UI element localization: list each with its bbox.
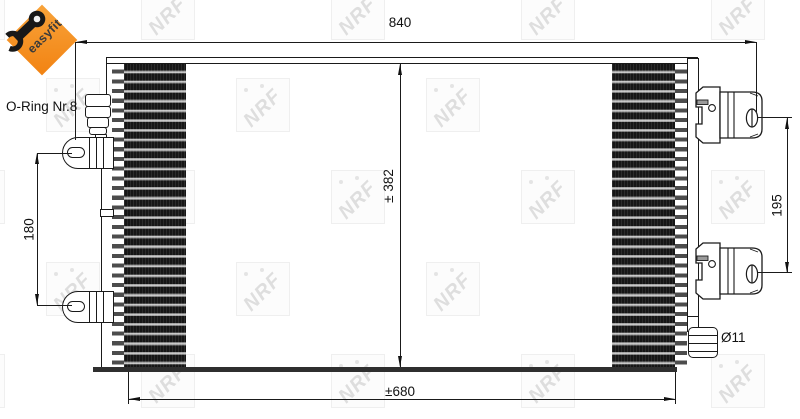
dim-680-arrow-left <box>129 397 140 401</box>
right-port-block-top <box>692 84 766 146</box>
dim-180-ext-top <box>37 153 72 154</box>
dim-195-arrow-bottom <box>785 262 789 273</box>
dim-840-arrow-right <box>745 40 756 44</box>
right-port-block-bottom <box>692 240 766 302</box>
dim-382-arrow-top <box>398 64 402 75</box>
bracket-line <box>89 292 90 322</box>
bracket-line <box>89 138 90 168</box>
drier-joint-line <box>687 316 699 317</box>
dim-680-line <box>128 399 675 400</box>
dim-180-line <box>37 153 38 305</box>
dim-180-ext-bottom <box>37 305 72 306</box>
dim-382-line <box>400 64 401 367</box>
bracket-line <box>96 292 97 322</box>
drier-cap-rib-3 <box>689 351 717 352</box>
easyfit-badge: easyfit <box>0 0 90 90</box>
drier-cap-rib-1 <box>689 335 717 336</box>
core-bottom-plate <box>93 367 677 372</box>
mount-bracket-bottom-hole <box>67 301 85 312</box>
dim-840-line <box>75 42 756 43</box>
right-fin-band <box>612 64 675 367</box>
dim-840-ext-right <box>756 42 757 112</box>
dim-195-line <box>787 118 788 273</box>
dim-180-arrow-top <box>35 153 39 164</box>
bracket-line <box>103 292 104 322</box>
dim-195-label: 195 <box>770 185 785 227</box>
mount-bracket-bottom <box>62 291 114 323</box>
pipe-diameter-label: Ø11 <box>721 330 746 345</box>
dim-680-arrow-right <box>664 397 675 401</box>
drier-cap-rib-2 <box>689 343 717 344</box>
drawing-layer: 840 ± 382 ±680 180 195 O-Ring Nr.8 Ø11 <box>0 0 800 419</box>
bracket-line <box>96 138 97 168</box>
left-fin-band <box>124 64 186 367</box>
dim-840-label: 840 <box>372 15 428 30</box>
dim-180-arrow-bottom <box>35 294 39 305</box>
left-side-plate-upper <box>106 63 107 95</box>
o-ring-label: O-Ring Nr.8 <box>6 99 77 114</box>
core-top-plate <box>106 57 698 64</box>
dim-680-label: ±680 <box>372 384 428 399</box>
left-side-stub <box>100 209 114 217</box>
dim-382-label: ± 382 <box>381 154 397 218</box>
right-tube-ends <box>675 64 687 367</box>
dim-382-arrow-bottom <box>398 356 402 367</box>
left-side-pipe <box>101 140 102 367</box>
condenser-technical-drawing: NRFNRFNRFNRFNRFNRFNRFNRFNRFNRFNRFNRFNRFN… <box>0 0 800 419</box>
dim-680-ext-right <box>675 372 676 404</box>
dim-195-arrow-top <box>785 118 789 129</box>
bracket-line <box>103 138 104 168</box>
dim-180-label: 180 <box>22 209 37 251</box>
